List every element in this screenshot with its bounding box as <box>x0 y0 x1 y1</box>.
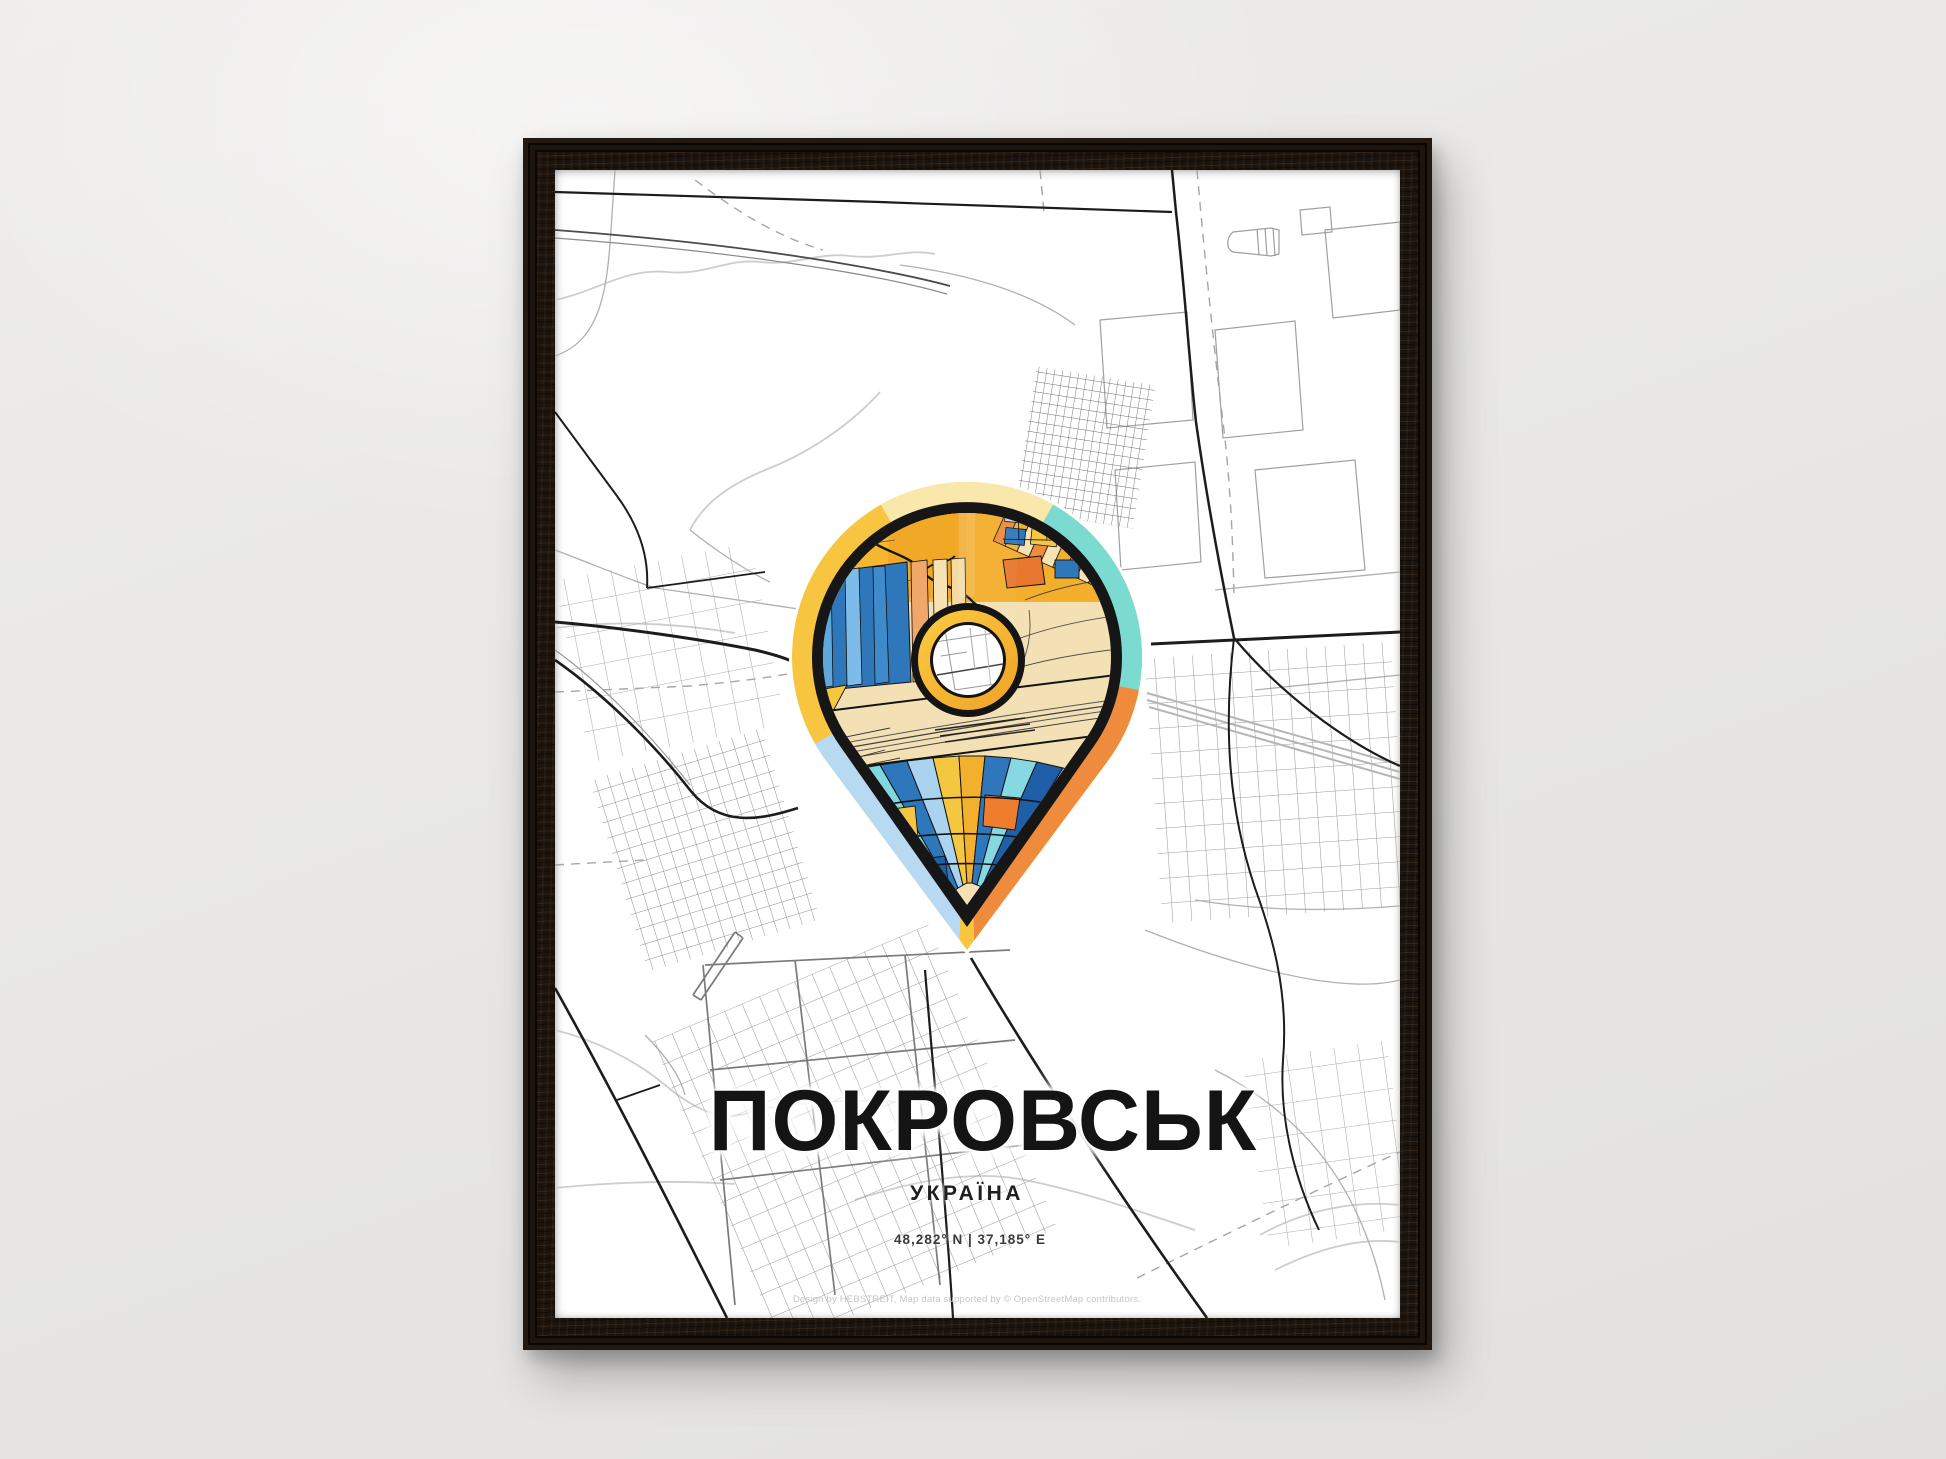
wall: ПОКРОВСЬК УКРАЇНА 48,282° N | 37,185° E … <box>0 0 1946 1459</box>
poster-credit: Design by HEBSTREIT, Map data supported … <box>793 1294 1141 1305</box>
grid-right <box>1144 642 1400 924</box>
grid-left <box>555 543 786 763</box>
poster-country: УКРАЇНА <box>910 1182 1024 1206</box>
poster-title: ПОКРОВСЬК <box>709 1072 1258 1171</box>
grid-lower-left <box>590 728 821 972</box>
poster-coordinates: 48,282° N | 37,185° E <box>894 1232 1046 1247</box>
center-ring-icon <box>911 603 1025 717</box>
picture-frame: ПОКРОВСЬК УКРАЇНА 48,282° N | 37,185° E … <box>523 138 1432 1350</box>
grid-bottom-right <box>1242 1040 1400 1248</box>
map-poster: ПОКРОВСЬК УКРАЇНА 48,282° N | 37,185° E … <box>555 170 1400 1318</box>
